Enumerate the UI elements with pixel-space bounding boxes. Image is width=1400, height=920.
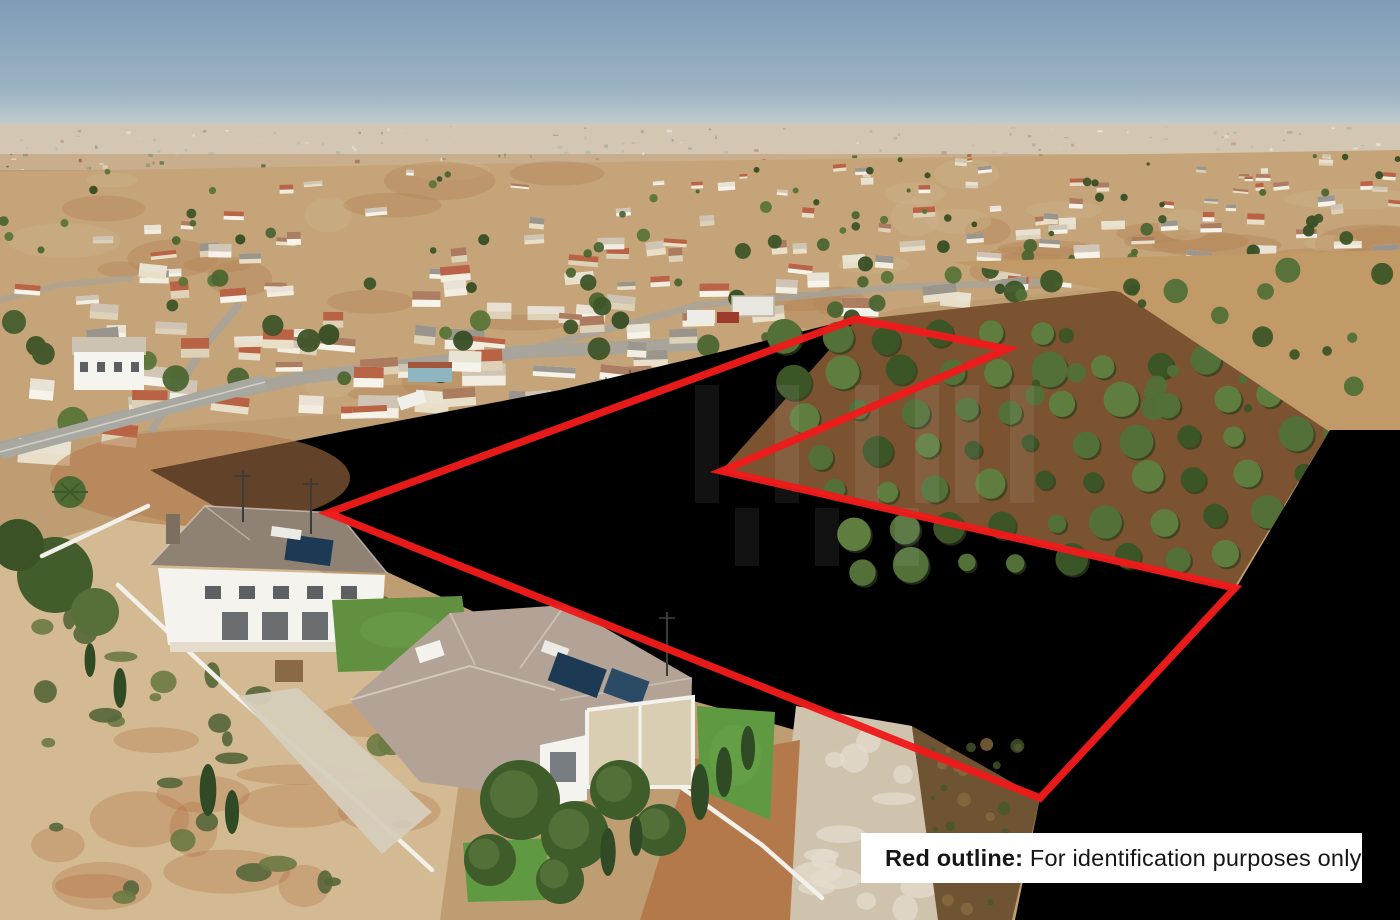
- disclaimer-label: Red outline: For identification purposes…: [861, 833, 1362, 883]
- scene-svg: [0, 0, 1400, 920]
- disclaimer-text: For identification purposes only: [1023, 845, 1361, 872]
- disclaimer-bold-text: Red outline:: [885, 845, 1023, 872]
- aerial-photo: Red outline: For identification purposes…: [0, 0, 1400, 920]
